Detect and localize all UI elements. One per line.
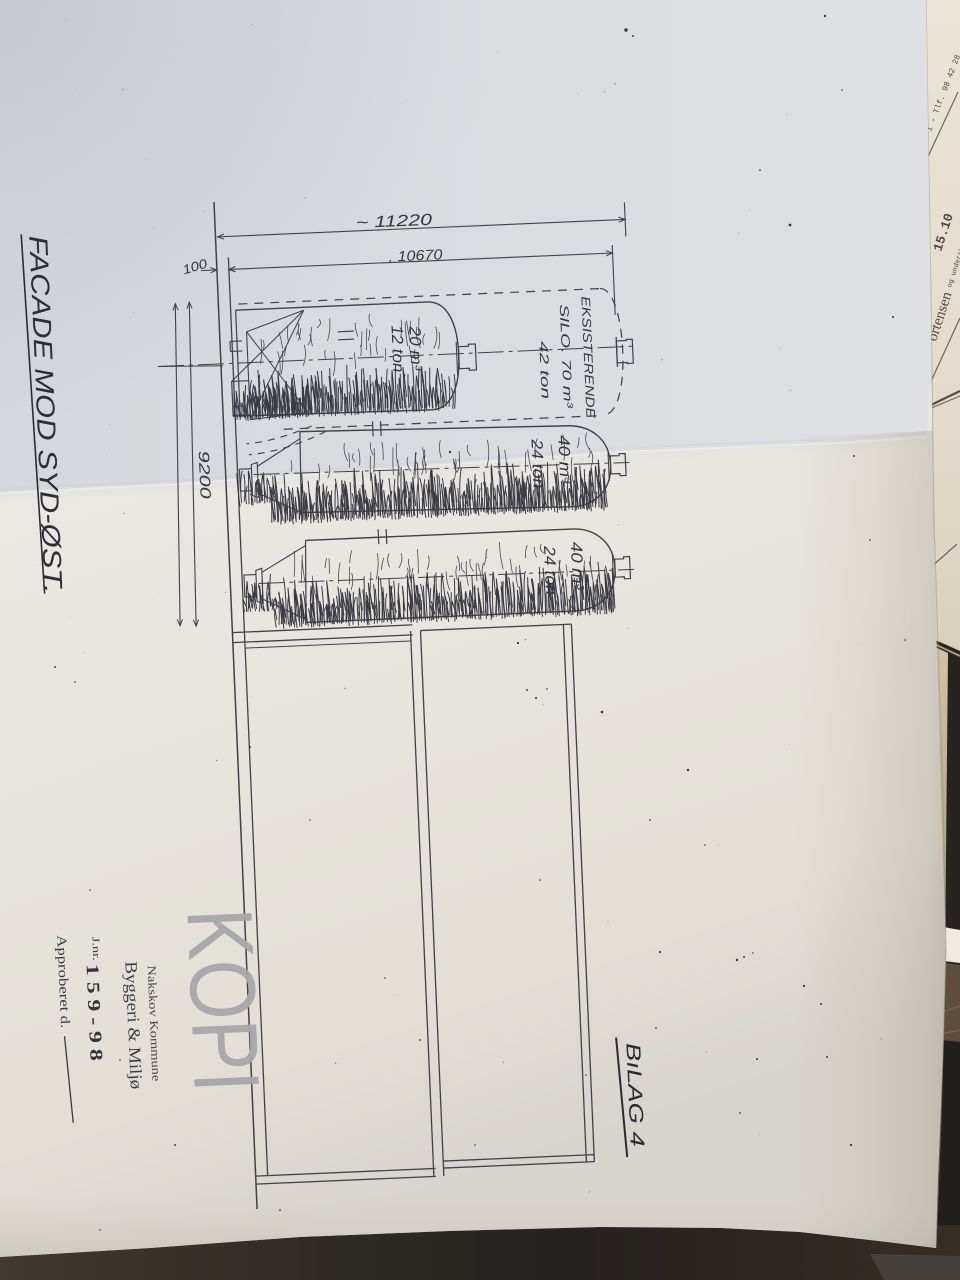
svg-text:9200: 9200 <box>195 450 214 500</box>
svg-text:J.nr.: J.nr. <box>89 937 101 961</box>
svg-text:~ 11220: ~ 11220 <box>356 212 433 232</box>
svg-text:1 5 9 - 9 8: 1 5 9 - 9 8 <box>82 963 106 1061</box>
svg-text:24 ton: 24 ton <box>527 438 546 489</box>
svg-text:40 m³: 40 m³ <box>567 542 586 591</box>
svg-text:12 ton: 12 ton <box>387 325 406 373</box>
svg-text:. 10670: . 10670 <box>388 247 443 265</box>
svg-text:40 m³: 40 m³ <box>554 435 573 484</box>
svg-text:20 m³: 20 m³ <box>405 325 424 371</box>
svg-text:42 ton: 42 ton <box>536 341 552 400</box>
svg-text:24 ton: 24 ton <box>540 545 559 596</box>
svg-text:KOPI: KOPI <box>167 906 279 1094</box>
